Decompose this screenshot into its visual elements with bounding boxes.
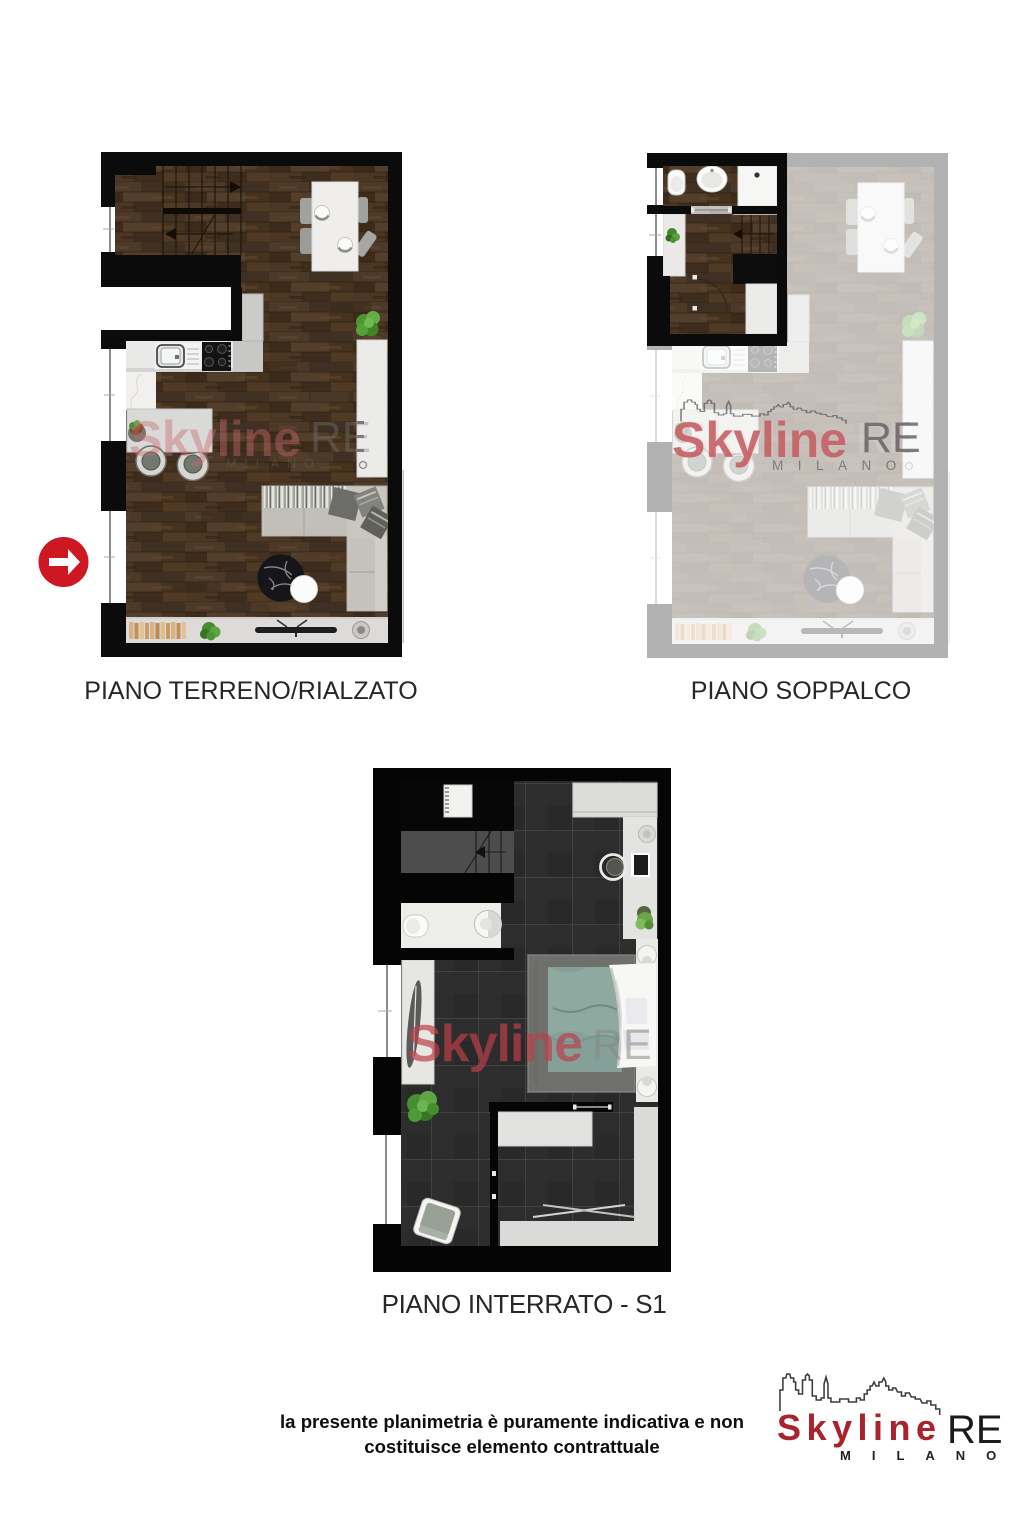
svg-text:Skyline: Skyline [407, 1015, 582, 1073]
svg-text:PIANO TERRENO/RIALZATO: PIANO TERRENO/RIALZATO [84, 677, 417, 705]
svg-text:costituisce elemento contrattu: costituisce elemento contrattuale [364, 1436, 660, 1457]
svg-text:MILANO: MILANO [840, 1448, 1017, 1463]
svg-text:RE: RE [592, 1021, 652, 1069]
svg-text:RE: RE [861, 414, 921, 462]
svg-text:RE: RE [310, 413, 371, 462]
svg-text:PIANO SOPPALCO: PIANO SOPPALCO [691, 677, 911, 705]
svg-text:RE: RE [947, 1408, 1003, 1452]
svg-text:MILANO: MILANO [226, 457, 322, 471]
svg-text:Skyline: Skyline [777, 1407, 942, 1448]
svg-text:PIANO INTERRATO - S1: PIANO INTERRATO - S1 [382, 1289, 667, 1319]
svg-text:la presente planimetria è pura: la presente planimetria è puramente indi… [280, 1411, 744, 1432]
svg-text:MILANO: MILANO [772, 458, 911, 473]
